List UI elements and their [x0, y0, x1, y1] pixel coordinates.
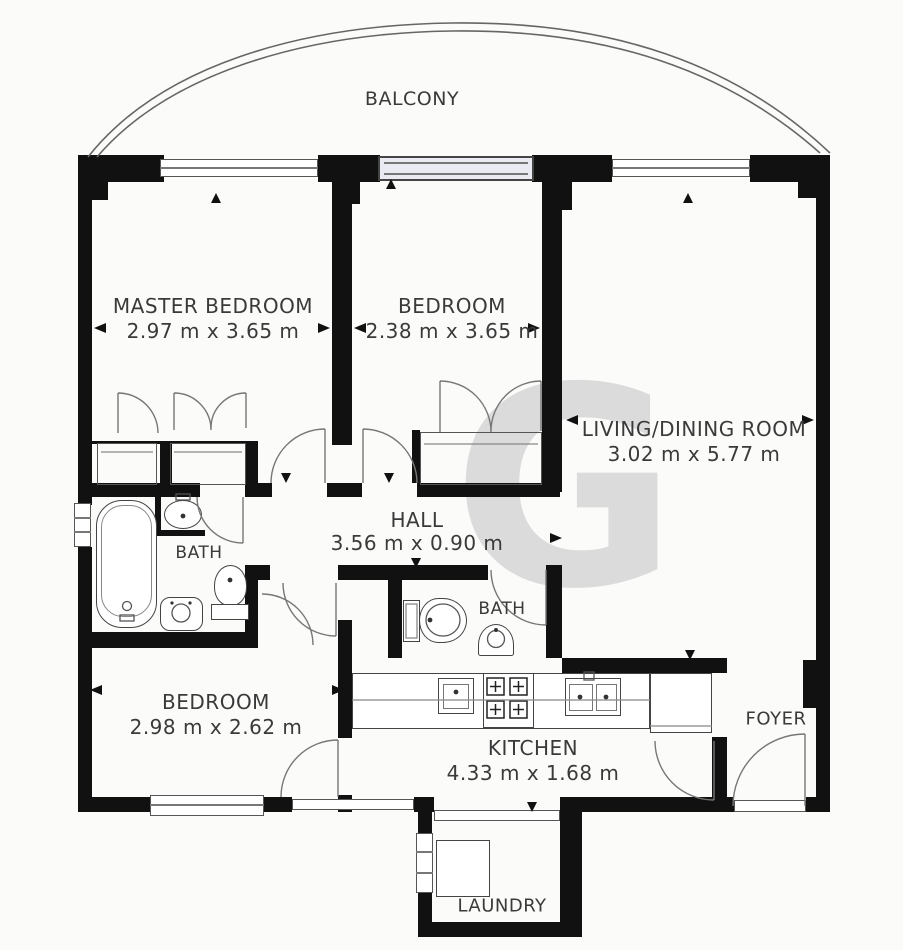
- bedroom3-door: [281, 740, 338, 797]
- fixture-details: [101, 444, 712, 726]
- hall-dimensions: 3.56 m x 0.90 m: [331, 531, 504, 555]
- hall-label: HALL: [390, 508, 443, 532]
- foyer-label: FOYER: [746, 709, 807, 730]
- entrance-door: [733, 734, 805, 806]
- window-mullion: [384, 162, 528, 164]
- window-mullion: [384, 173, 528, 175]
- floor-plan: G: [0, 0, 903, 950]
- closet-door: [118, 393, 158, 433]
- bath1-label: BATH: [175, 543, 222, 563]
- closet-door: [174, 393, 211, 430]
- living-dining-label: LIVING/DINING ROOM: [582, 417, 806, 441]
- kitchen-label: KITCHEN: [488, 736, 578, 760]
- window-mullion: [74, 531, 91, 533]
- bath1-door: [197, 497, 243, 543]
- master-bedroom-label: MASTER BEDROOM: [113, 294, 313, 318]
- stove-burners: [487, 678, 527, 718]
- vestibule-door: [262, 594, 313, 645]
- laundry-label: LAUNDRY: [457, 896, 546, 917]
- window-mullion: [160, 167, 318, 169]
- master-bedroom-dimensions: 2.97 m x 3.65 m: [127, 319, 300, 343]
- window-mullion: [416, 872, 433, 874]
- vestibule-door: [283, 583, 336, 636]
- bedroom3-label: BEDROOM: [162, 690, 270, 714]
- living-dining-dimensions: 3.02 m x 5.77 m: [608, 442, 781, 466]
- bedroom2-dimensions: 2.38 m x 3.65 m: [366, 319, 539, 343]
- bath2-label: BATH: [478, 599, 525, 619]
- window-mullion: [74, 517, 91, 519]
- window-mullion: [612, 167, 750, 169]
- closet-door: [211, 393, 246, 428]
- window-mullion: [416, 851, 433, 853]
- closet-door: [440, 381, 491, 432]
- kitchen-dimensions: 4.33 m x 1.68 m: [447, 761, 620, 785]
- master-bedroom-door: [271, 429, 325, 483]
- balcony-label: BALCONY: [365, 88, 459, 110]
- closet-door: [491, 381, 541, 431]
- bedroom3-dimensions: 2.98 m x 2.62 m: [130, 715, 303, 739]
- kitchen-foyer-door: [655, 741, 714, 800]
- bedroom2-label: BEDROOM: [398, 294, 506, 318]
- plan-linework: [0, 0, 903, 950]
- window-mullion: [150, 804, 264, 806]
